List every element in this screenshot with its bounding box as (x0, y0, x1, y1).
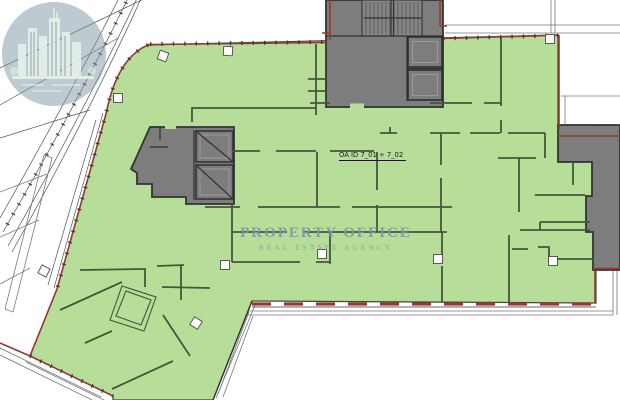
watermark-subtitle: REAL ESTATE AGENCY (224, 243, 428, 252)
watermark-title: PROPERTY OFFICE (224, 225, 428, 242)
unit-area-highlight (30, 35, 596, 400)
column (223, 46, 233, 56)
column (38, 265, 50, 277)
unit-green-polygon (30, 35, 596, 400)
floor-plan-canvas: PROPERTY OFFICE REAL ESTATE AGENCY OA ID… (0, 0, 620, 400)
column (546, 35, 555, 44)
door-opening (350, 104, 364, 110)
column (434, 255, 443, 264)
column (114, 94, 123, 103)
column (549, 257, 558, 266)
door-opening (165, 126, 176, 130)
stair-elevator-core-top (322, 0, 447, 109)
column (221, 261, 230, 270)
unit-id-label: OA ID 7_01 ÷ 7_02 (339, 151, 406, 161)
agency-logo-icon (0, 0, 108, 108)
